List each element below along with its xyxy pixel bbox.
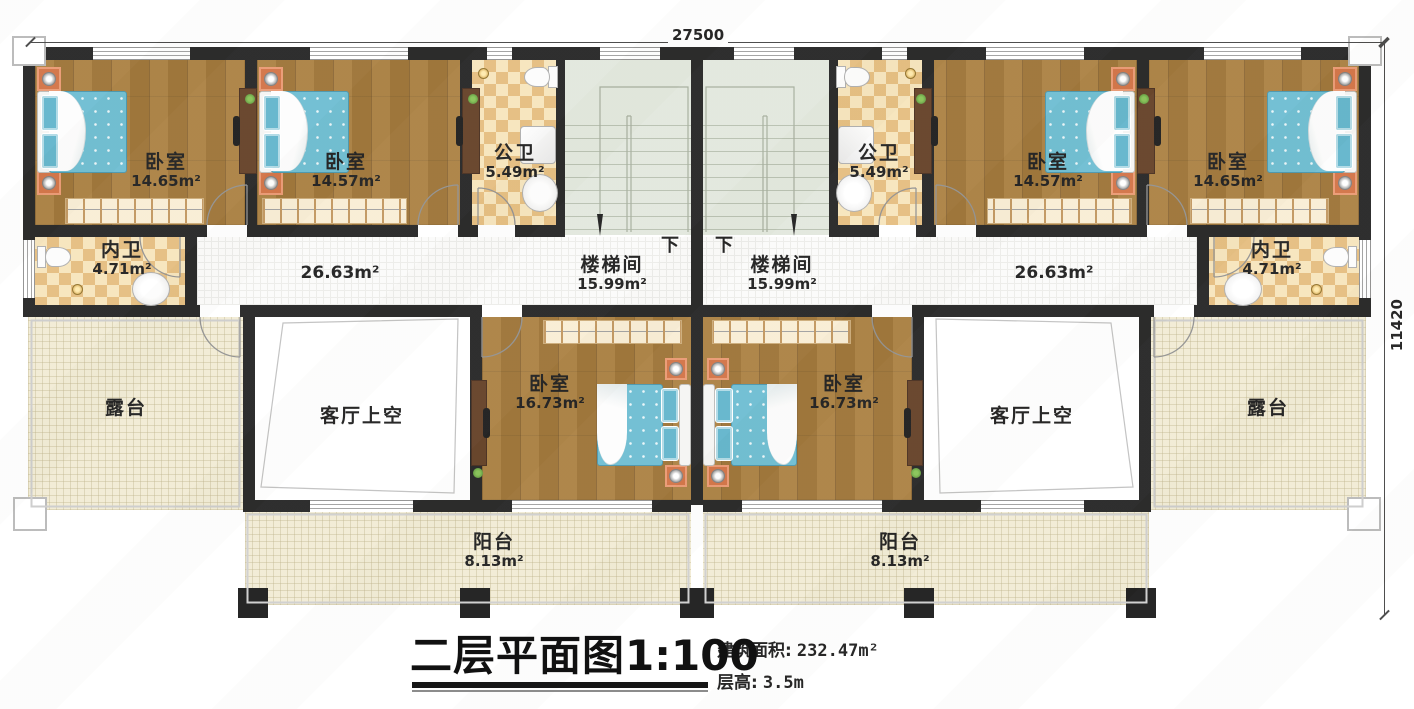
room-name: 卧室	[774, 374, 914, 395]
room-name: 露台	[56, 398, 196, 419]
title-underline	[412, 682, 708, 688]
room-name: 楼梯间	[712, 255, 852, 276]
pillow	[41, 95, 59, 131]
pillow	[661, 388, 679, 423]
wall-terrace-void	[1139, 317, 1151, 500]
room-name: 客厅上空	[942, 406, 1122, 427]
room-area: 14.57m²	[978, 173, 1118, 190]
bath-public-label: 公卫 5.49m²	[819, 143, 939, 181]
unit-right: 卧室 14.65m² 卧室 14.57m² 公卫 5.49m² 楼梯间 15.9…	[697, 0, 1394, 709]
balcony-pillar-center	[697, 588, 714, 618]
corridor-label: 26.63m²	[270, 264, 410, 283]
nightstand	[1111, 67, 1135, 91]
tv	[456, 116, 463, 146]
window-bedroom-b	[310, 47, 408, 60]
room-area: 14.57m²	[276, 173, 416, 190]
bedroom-a-label: 卧室 14.65m²	[1158, 152, 1298, 190]
nightstand	[1333, 171, 1357, 195]
drawing-title: 二层平面图	[410, 631, 625, 680]
wall-lamp	[905, 68, 916, 79]
wall-corridor-n2	[976, 225, 1147, 237]
room-area: 8.13m²	[830, 553, 970, 570]
wall-corridor-s3	[522, 305, 691, 317]
plant	[245, 94, 255, 104]
nightstand	[707, 465, 729, 487]
pillow	[1113, 95, 1131, 131]
wall-corridor-s2	[912, 305, 1154, 317]
wall-corridor-n3	[916, 225, 936, 237]
dimension-line-right	[1384, 43, 1385, 615]
wall-corridor-s3	[703, 305, 872, 317]
floor-height-value: 3.5m	[763, 673, 804, 693]
window-bath-public	[882, 47, 907, 60]
bath-inner-label: 内卫 4.71m²	[1202, 240, 1342, 278]
balcony-pillar	[904, 588, 934, 618]
stair-treads	[703, 113, 829, 234]
balcony-pillar	[238, 588, 268, 618]
room-name: 阳台	[424, 532, 564, 553]
corner-pier	[1348, 36, 1382, 66]
room-name: 卧室	[96, 152, 236, 173]
pillow	[661, 426, 679, 461]
balcony-pillar-center	[680, 588, 697, 618]
closet	[543, 320, 682, 344]
window-bath-inner	[1359, 240, 1371, 298]
nightstand	[707, 358, 729, 380]
pillow	[715, 426, 733, 461]
room-area: 15.99m²	[542, 276, 682, 293]
stair-treads	[565, 113, 691, 234]
plant	[473, 468, 483, 478]
room-name: 阳台	[830, 532, 970, 553]
plant	[916, 94, 926, 104]
wall-corridor-n3	[458, 225, 478, 237]
room-area: 16.73m²	[774, 395, 914, 412]
stair-down-label: 下	[704, 236, 744, 256]
plant	[468, 94, 478, 104]
room-name: 内卫	[52, 240, 192, 261]
pillow	[1335, 95, 1353, 131]
closet	[262, 198, 407, 224]
balcony-label: 阳台 8.13m²	[424, 532, 564, 570]
closet	[65, 198, 204, 224]
room-area: 5.49m²	[819, 164, 939, 181]
corridor-label: 26.63m²	[984, 264, 1124, 283]
wall-lamp	[478, 68, 489, 79]
unit-left: 卧室 14.65m² 卧室 14.57m² 公卫 5.49m² 楼梯间 15.9…	[0, 0, 697, 709]
nightstand	[665, 465, 687, 487]
terrace-label: 露台	[56, 398, 196, 419]
closet	[987, 198, 1132, 224]
closet	[712, 320, 851, 344]
nightstand	[37, 171, 61, 195]
pillow	[263, 95, 281, 131]
closet	[1190, 198, 1329, 224]
room-area: 14.65m²	[96, 173, 236, 190]
room-area: 16.73m²	[480, 395, 620, 412]
room-name: 卧室	[276, 152, 416, 173]
bedroom-c-label: 卧室 16.73m²	[480, 374, 620, 412]
room-name: 卧室	[978, 152, 1118, 173]
wall-corridor-s1	[23, 305, 200, 317]
window-bedroom-a	[1204, 47, 1301, 60]
wall-lamp	[1311, 284, 1322, 295]
window-stairwell	[734, 47, 794, 60]
terrace-step	[13, 497, 47, 531]
balcony-pillar	[460, 588, 490, 618]
nightstand	[37, 67, 61, 91]
wall-corridor-n4	[829, 225, 879, 237]
room-name: 露台	[1198, 398, 1338, 419]
toilet-bowl	[524, 67, 550, 87]
plant	[1139, 94, 1149, 104]
room-area: 5.49m²	[455, 164, 575, 181]
wall-corridor-n1	[1187, 225, 1359, 237]
nightstand	[259, 67, 283, 91]
stairwell-label: 楼梯间 15.99m²	[542, 255, 682, 293]
wall-lamp	[72, 284, 83, 295]
window-stairwell	[600, 47, 660, 60]
bedroom-c-label: 卧室 16.73m²	[774, 374, 914, 412]
floor-plan: 卧室 14.65m² 卧室 14.57m² 公卫 5.49m² 楼梯间 15.9…	[0, 0, 1414, 709]
window-bath-public	[487, 47, 512, 60]
pillow	[715, 388, 733, 423]
tv	[931, 116, 938, 146]
pillow	[1335, 133, 1353, 169]
wall-corridor-s2	[240, 305, 482, 317]
window-bedroom-a	[93, 47, 190, 60]
wall-corridor-n4	[515, 225, 565, 237]
building-area-value: 232.47m²	[797, 641, 879, 661]
room-name: 卧室	[1158, 152, 1298, 173]
bath-public-label: 公卫 5.49m²	[455, 143, 575, 181]
living-void-label: 客厅上空	[942, 406, 1122, 427]
bed-headboard	[703, 384, 715, 466]
drawing-scale: 1:100	[625, 631, 759, 680]
tv	[904, 408, 911, 438]
wall-terrace-void	[243, 317, 255, 500]
wall-corridor-n2	[247, 225, 418, 237]
bed-headboard	[679, 384, 691, 466]
bedroom-b-label: 卧室 14.57m²	[978, 152, 1118, 190]
plant	[911, 468, 921, 478]
living-void-label: 客厅上空	[272, 406, 452, 427]
room-name: 内卫	[1202, 240, 1342, 261]
title-underline-thin	[412, 690, 708, 692]
room-area: 4.71m²	[1202, 261, 1342, 278]
tv	[1154, 116, 1161, 146]
tv	[233, 116, 240, 146]
pillow	[41, 133, 59, 169]
nightstand	[665, 358, 687, 380]
room-area: 15.99m²	[712, 276, 852, 293]
room-name: 公卫	[455, 143, 575, 164]
room-name: 楼梯间	[542, 255, 682, 276]
room-area: 26.63m²	[270, 264, 410, 283]
room-name: 公卫	[819, 143, 939, 164]
title-block: 二层平面图1:100	[410, 622, 759, 683]
nightstand	[1333, 67, 1357, 91]
wall-corridor-s1	[1194, 305, 1371, 317]
balcony-label: 阳台 8.13m²	[830, 532, 970, 570]
window-bedroom-c	[512, 500, 652, 512]
room-name: 卧室	[480, 374, 620, 395]
bath-inner-label: 内卫 4.71m²	[52, 240, 192, 278]
terrace-label: 露台	[1198, 398, 1338, 419]
balcony-pillar	[1126, 588, 1156, 618]
toilet-bowl	[844, 67, 870, 87]
dimension-width: 27500	[668, 26, 728, 44]
terrace-step	[1347, 497, 1381, 531]
room-area: 26.63m²	[984, 264, 1124, 283]
stairwell-label: 楼梯间 15.99m²	[712, 255, 852, 293]
window-bath-inner	[23, 240, 35, 298]
window-living-void	[310, 500, 413, 512]
room-name: 客厅上空	[272, 406, 452, 427]
stair-down-label: 下	[650, 236, 690, 256]
toilet-tank	[1348, 246, 1357, 268]
room-area: 4.71m²	[52, 261, 192, 278]
dimension-height: 11420	[1388, 295, 1406, 355]
tv	[483, 408, 490, 438]
room-area: 14.65m²	[1158, 173, 1298, 190]
window-bedroom-c	[742, 500, 882, 512]
bedroom-b-label: 卧室 14.57m²	[276, 152, 416, 190]
wall-corridor-n1	[35, 225, 207, 237]
window-living-void	[981, 500, 1084, 512]
bedroom-a-label: 卧室 14.65m²	[96, 152, 236, 190]
room-area: 8.13m²	[424, 553, 564, 570]
window-bedroom-b	[986, 47, 1084, 60]
